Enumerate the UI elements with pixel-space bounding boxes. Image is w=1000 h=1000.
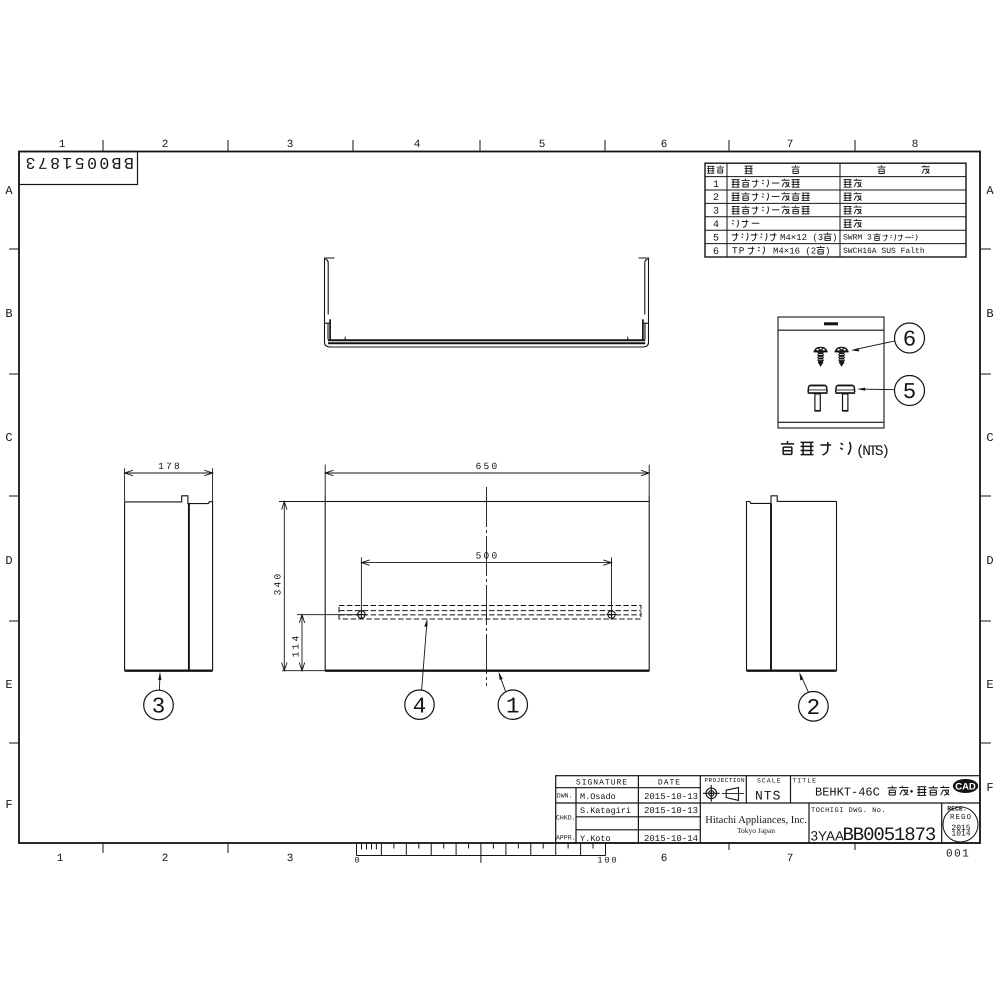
- svg-text:2015-10-14: 2015-10-14: [644, 834, 698, 844]
- svg-text:C: C: [986, 431, 993, 445]
- svg-text:NTS: NTS: [755, 789, 781, 804]
- svg-text:APPR.: APPR.: [556, 835, 576, 842]
- svg-text:Y.Koto: Y.Koto: [580, 834, 611, 844]
- svg-text:2: 2: [807, 695, 821, 721]
- svg-text:(NTS): (NTS): [856, 444, 888, 460]
- svg-text:1: 1: [57, 853, 64, 865]
- svg-text:C: C: [5, 431, 12, 445]
- svg-text:001: 001: [946, 849, 970, 861]
- svg-text:3: 3: [152, 694, 166, 720]
- svg-text:340: 340: [273, 572, 284, 596]
- svg-text:6: 6: [661, 139, 668, 151]
- svg-text:1: 1: [506, 693, 520, 719]
- svg-text:500: 500: [476, 551, 500, 562]
- svg-text:M.Osado: M.Osado: [580, 792, 616, 802]
- svg-text:6: 6: [903, 327, 917, 353]
- svg-text:D: D: [986, 554, 993, 568]
- svg-text:BB0051873: BB0051873: [843, 824, 936, 846]
- svg-text:8: 8: [912, 139, 919, 151]
- svg-text:DWN.: DWN.: [557, 793, 573, 800]
- svg-text:Hitachi Appliances, Inc.: Hitachi Appliances, Inc.: [705, 815, 806, 826]
- svg-text:4: 4: [413, 693, 427, 719]
- svg-text:DATE: DATE: [658, 779, 681, 788]
- svg-text:F: F: [986, 781, 993, 795]
- svg-text:SCALE: SCALE: [757, 777, 782, 784]
- svg-text:2015-10-13: 2015-10-13: [644, 806, 698, 816]
- svg-text:3YAA: 3YAA: [811, 828, 845, 843]
- svg-text:5: 5: [903, 379, 917, 405]
- svg-text:7: 7: [787, 139, 794, 151]
- svg-text:SWRM 3: SWRM 3: [843, 234, 872, 243]
- svg-text:B: B: [5, 307, 12, 321]
- svg-text:1: 1: [59, 139, 66, 151]
- svg-text:TOCHIGI DWG. No.: TOCHIGI DWG. No.: [811, 807, 886, 815]
- svg-text:B: B: [986, 307, 993, 321]
- svg-text:6: 6: [661, 853, 668, 865]
- svg-text:100: 100: [597, 856, 618, 866]
- svg-text:M4×16 (2: M4×16 (2: [773, 247, 816, 257]
- svg-text:REGO: REGO: [950, 813, 972, 822]
- svg-text:PROJECTION: PROJECTION: [705, 777, 746, 784]
- svg-text:6: 6: [713, 247, 719, 258]
- svg-text:0: 0: [354, 856, 359, 866]
- svg-text:CHKD.: CHKD.: [556, 815, 576, 822]
- svg-text:178: 178: [158, 461, 182, 472]
- svg-text:): ): [825, 247, 830, 257]
- svg-text:650: 650: [476, 461, 500, 472]
- svg-text:CAD: CAD: [955, 781, 976, 792]
- svg-text:4: 4: [414, 139, 421, 151]
- svg-text:S.Katagiri: S.Katagiri: [580, 806, 631, 816]
- svg-text:): ): [832, 233, 837, 243]
- svg-text:SWCH16A SUS Falth: SWCH16A SUS Falth: [843, 247, 925, 256]
- svg-text:1014: 1014: [951, 830, 970, 839]
- svg-text:Tokyo Japan: Tokyo Japan: [737, 826, 775, 835]
- svg-text:SIGNATURE: SIGNATURE: [576, 779, 628, 788]
- svg-text:5: 5: [713, 233, 719, 244]
- svg-text:4: 4: [713, 220, 719, 231]
- svg-text:TP: TP: [732, 246, 745, 257]
- svg-text:2: 2: [713, 193, 719, 204]
- svg-text:D: D: [5, 554, 12, 568]
- svg-text:3: 3: [287, 853, 294, 865]
- svg-text:M4×12 (3: M4×12 (3: [780, 233, 823, 243]
- svg-text:2015-10-13: 2015-10-13: [644, 792, 698, 802]
- svg-text:F: F: [5, 798, 12, 812]
- svg-text:114: 114: [291, 634, 302, 658]
- svg-text:3: 3: [713, 207, 719, 218]
- svg-text:RECE.: RECE.: [947, 806, 967, 813]
- svg-text:7: 7: [787, 853, 794, 865]
- svg-text:TITLE: TITLE: [793, 778, 818, 785]
- svg-text:2: 2: [162, 853, 169, 865]
- svg-text:A: A: [5, 184, 13, 198]
- svg-text:1: 1: [713, 180, 719, 191]
- svg-text:E: E: [986, 678, 993, 692]
- svg-text:A: A: [986, 184, 994, 198]
- svg-text:BB0051873: BB0051873: [23, 153, 134, 172]
- svg-text:BEHKT-46C: BEHKT-46C: [815, 786, 880, 800]
- svg-text:2: 2: [162, 139, 169, 151]
- svg-text:3: 3: [287, 139, 294, 151]
- svg-text:E: E: [5, 678, 12, 692]
- svg-text:5: 5: [539, 139, 546, 151]
